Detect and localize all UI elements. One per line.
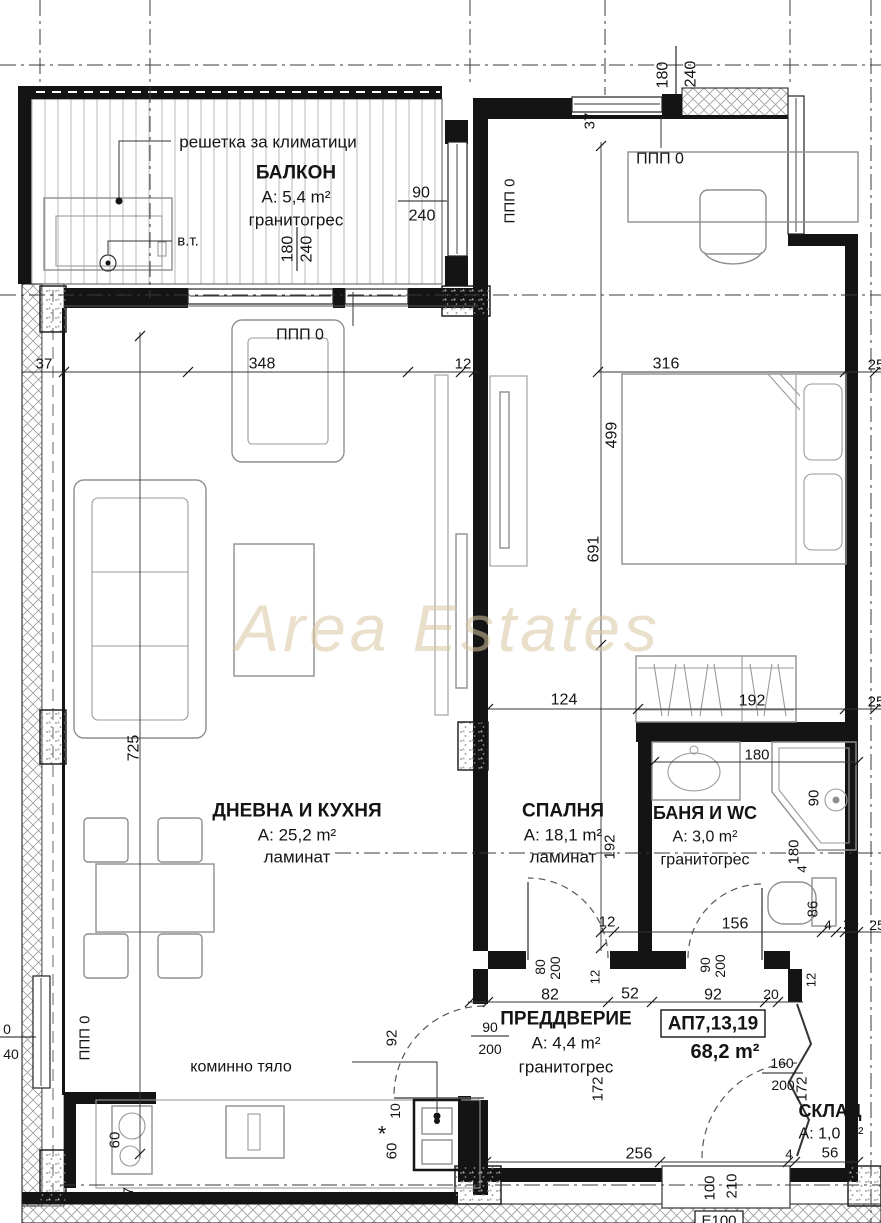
storage-name: СКЛАД [798,1101,861,1121]
dim-10-51: 10 [472,987,486,1002]
bedroom-floor: ламинат [530,848,597,867]
door-swing-living [394,1006,484,1098]
bedroom-area: A: 18,1 m² [524,826,603,845]
living-area: A: 25,2 m² [258,826,337,845]
window-living-1 [188,289,333,304]
dim-4-40: 4 [795,865,810,872]
dim-156-43: 156 [722,916,749,933]
dim-200-81: 200 [771,1077,795,1093]
dim-90-47: 90 [697,957,713,973]
dim-37-9: 37 [123,289,140,306]
window-bedroom-top [572,97,662,112]
dim-80-49: 80 [532,959,548,975]
dim-200-64: 200 [478,1041,502,1057]
desk-and-chair [628,152,858,264]
wall-exterior-top-right [682,88,788,118]
wall-exterior-right [845,234,858,1170]
apartment-id: АП7,13,19 [668,1014,759,1035]
dim-20-55: 20 [763,986,779,1002]
bath-floor: гранитогрес [660,852,749,869]
concrete-pier [848,1166,881,1206]
dim-4-78: 4 [785,1147,792,1162]
stairwell-label: Е100 [701,1213,736,1223]
wall-bedroom-west-upper [473,98,488,310]
watermark: Area Estates [231,591,661,665]
wall-bath-west [638,742,652,969]
dim-691-22: 691 [586,536,603,563]
vt-label: в.т. [177,233,199,250]
dim-25-25: 25 [868,694,881,711]
hall-name: ПРЕДДВЕРИЕ [500,1009,631,1030]
dim-725-26: 725 [126,735,143,762]
bath-area: A: 3,0 m² [673,829,739,846]
dim-92-65: 92 [384,1030,401,1047]
dim-240-6: 240 [409,208,436,225]
ppp-kitchen: ППП 0 [77,1016,94,1061]
window-balcony-bedroom [448,142,467,256]
balcony-floor: гранитогрес [249,211,344,230]
apartment-total-area: 68,2 m² [691,1041,760,1063]
balcony-name: БАЛКОН [256,163,336,184]
dim-499-21: 499 [604,422,621,449]
living-name: ДНЕВНА И КУХНЯ [212,801,381,822]
dim-192-24: 192 [739,693,766,710]
concrete-pier [40,1150,66,1202]
hall-floor: гранитогрес [519,1058,614,1077]
floor-plan-page: БАЛКОНA: 5,4 m²гранитогресрешетка за кли… [0,0,881,1223]
dim-90-38: 90 [806,790,823,807]
dim-4-44: 4 [824,918,831,933]
dim-124-23: 124 [551,692,578,709]
dim-240-8: 240 [299,236,316,263]
ppp-living: ППП 0 [276,327,324,344]
dim-240-16: 240 [683,61,700,88]
balcony-parapet-left [18,86,31,284]
dim-172-83: 172 [794,1076,811,1101]
dim-37-74: 37 [120,1187,136,1203]
window-living-2 [345,289,408,304]
door-swing-bedroom [528,878,608,958]
hall-area: A: 4,4 m² [532,1034,601,1053]
dim-52-53: 52 [621,986,639,1003]
bedroom-name: СПАЛНЯ [522,801,604,822]
window-kitchen [33,976,50,1088]
dim-172-82: 172 [590,1076,607,1101]
dim-56-79: 56 [822,1145,839,1162]
dim-37-17: 37 [582,113,599,130]
dim-20-45: 20 [843,916,859,932]
dim-256-75: 256 [626,1146,653,1163]
concrete-pier [458,722,488,770]
balcony-floor [31,99,442,284]
pillow [804,474,842,550]
dim-12-42: 12 [599,914,616,931]
dim-60-68: 60 [384,1143,401,1160]
dim-200-50: 200 [547,956,563,980]
concrete-pier [40,710,66,764]
wardrobe [636,656,796,722]
dim-192-33: 192 [602,834,619,859]
ppp-balcony-window: ППП 0 [502,179,519,224]
dim-25-20: 25 [868,357,881,374]
dim-90-63: 90 [482,1019,498,1035]
dim-348-11: 348 [249,356,276,373]
ac-grille-label: решетка за климатици [179,133,357,152]
dim-210-77: 210 [724,1173,741,1198]
dim-180-7: 180 [280,236,297,263]
dim-12-56: 12 [588,970,603,984]
bath-sink [652,742,740,800]
pillow [804,384,842,460]
storage-area: A: 1,0 m² [799,1126,865,1143]
dim-0-70: 0 [3,1021,11,1037]
ppp-bedroom: ППП 0 [636,151,684,168]
dim-180-39: 180 [786,839,803,864]
dim-90-5: 90 [412,185,430,202]
dim-86-41: 86 [805,901,822,918]
bed [622,374,846,564]
dim-316-19: 316 [653,356,680,373]
dim-12-12: 12 [455,356,472,373]
dining-set [84,818,214,978]
dim-92-54: 92 [704,987,722,1004]
dim-180-37: 180 [744,747,769,764]
living-floor: ламинат [264,848,331,867]
dim-200-48: 200 [712,954,728,978]
bath-name: БАНЯ И WC [653,803,757,823]
concrete-pier [442,286,490,316]
balcony-area: A: 5,4 m² [262,188,331,207]
dim-40-71: 40 [3,1046,19,1062]
tv-bedroom [490,376,527,566]
dim-37-13: 37 [36,356,53,373]
dim-180-15: 180 [655,62,672,89]
concrete-pier [40,286,66,332]
chimney-label: коминно тяло [190,1059,292,1076]
dim-100-76: 100 [702,1175,719,1200]
dim-12-57: 12 [804,973,819,987]
dim-160-80: 160 [770,1055,794,1071]
dim-25-46: 25 [869,917,881,933]
dim-10-66: 10 [387,1103,403,1119]
dim-60-73: 60 [107,1132,124,1149]
floor-plan-drawing: БАЛКОНA: 5,4 m²гранитогресрешетка за кли… [0,0,881,1223]
dim-82-52: 82 [541,987,559,1004]
wall-bath-north [636,722,858,742]
